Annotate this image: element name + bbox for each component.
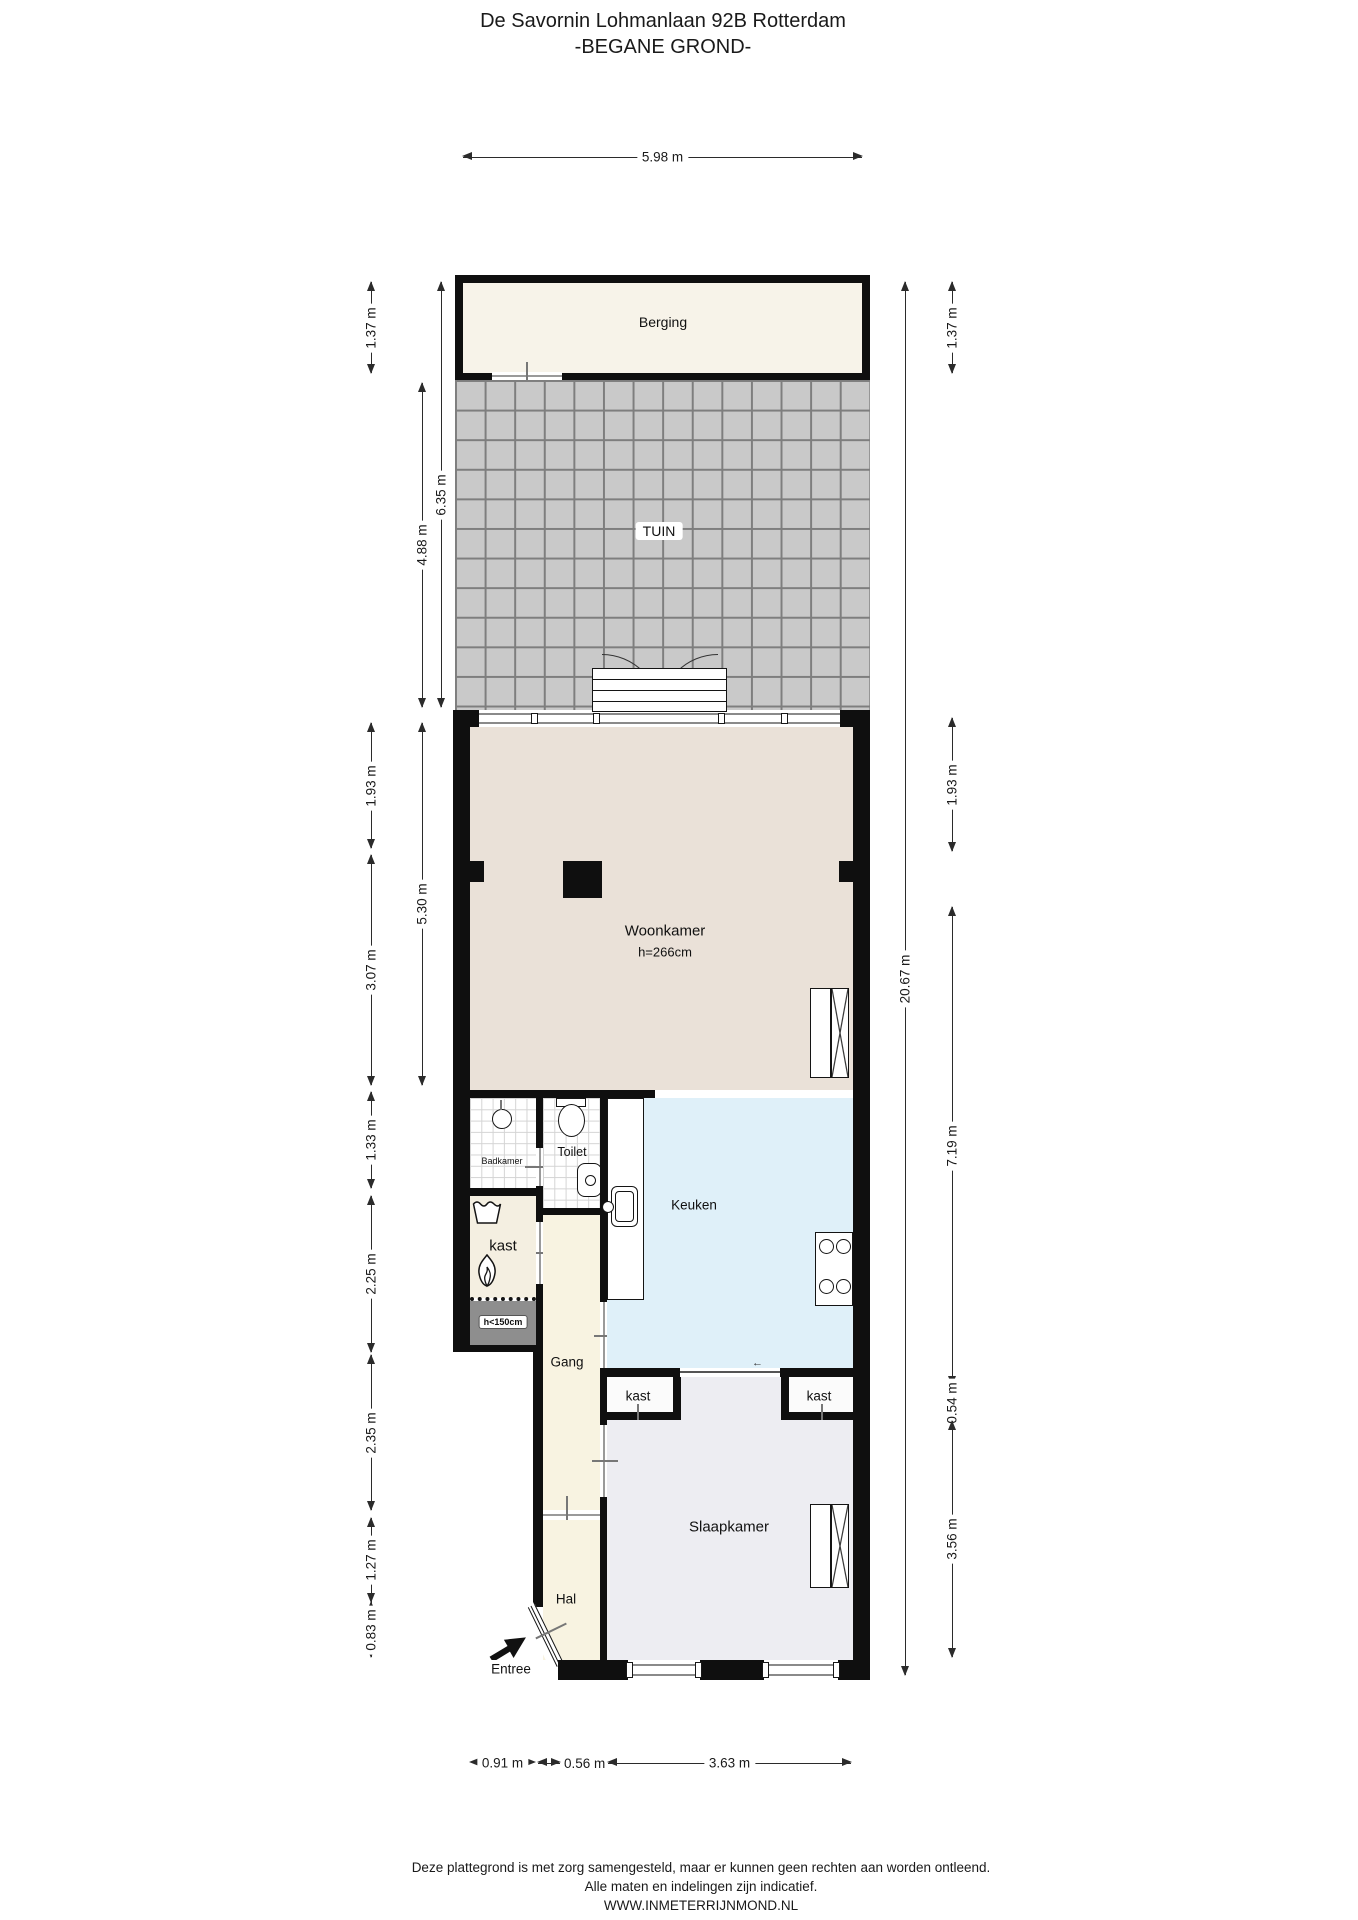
kitchen-sink-icon [611,1186,638,1227]
sliding-door [680,1371,780,1373]
kitchen-faucet-icon [602,1201,614,1213]
footer-website: WWW.INMETERRIJNMOND.NL [301,1896,1101,1915]
hand-basin-icon [577,1163,602,1197]
laundry-icon [472,1197,502,1225]
room-label-hal: Hal [556,1592,576,1607]
room-label-tuin: TUIN [636,522,683,540]
title-floor: -BEGANE GROND- [263,36,1063,59]
wall-pier-right [839,861,853,882]
room-tuin [455,380,870,710]
entree-arrow-icon [486,1628,530,1660]
shower-icon [492,1109,512,1129]
room-label-woonkamer: Woonkamer [625,923,706,940]
front-window-left [628,1664,700,1676]
garden-steps [592,668,727,712]
left-exterior-wall [453,710,470,1352]
low-headroom-label: h<150cm [479,1315,528,1329]
room-label-keuken: Keuken [671,1198,717,1213]
chimney-column [563,861,602,898]
room-label-entree: Entree [491,1662,531,1677]
room-label-berging: Berging [639,314,687,330]
footer-line1: Deze plattegrond is met zorg samengestel… [301,1858,1101,1877]
sliding-arrow-left-icon: ← [752,1357,763,1369]
room-woonkamer [470,727,853,1090]
dim-bottom-middle-label: 0.56 m [564,1756,605,1771]
room-label-badkamer: Badkamer [481,1156,522,1166]
slaapkamer-window-x [831,1504,849,1588]
room-label-kast-left: kast [626,1389,651,1404]
slaapkamer-radiator [810,1504,831,1588]
floorplan-page: De Savornin Lohmanlaan 92B Rotterdam -BE… [0,0,1358,1920]
front-window-right [764,1664,838,1676]
wall-pier-left [470,861,484,882]
footer-line2: Alle maten en indelingen zijn indicatief… [301,1877,1101,1896]
heater-flame-icon [474,1254,500,1288]
room-label-gang: Gang [550,1355,583,1370]
room-label-kast: kast [489,1238,517,1255]
page-title: De Savornin Lohmanlaan 92B Rotterdam -BE… [263,10,1063,59]
woonkamer-ceiling-height: h=266cm [638,945,692,960]
stove-icon [815,1232,853,1306]
title-address: De Savornin Lohmanlaan 92B Rotterdam [263,10,1063,33]
footer-disclaimer: Deze plattegrond is met zorg samengestel… [301,1858,1101,1915]
room-label-slaapkamer: Slaapkamer [689,1519,769,1536]
room-label-kast-right: kast [807,1389,832,1404]
woonkamer-window-x [831,988,849,1078]
woonkamer-radiator [810,988,831,1078]
wc-icon [558,1104,585,1137]
right-exterior-wall [853,710,870,1680]
room-label-toilet: Toilet [557,1145,586,1159]
